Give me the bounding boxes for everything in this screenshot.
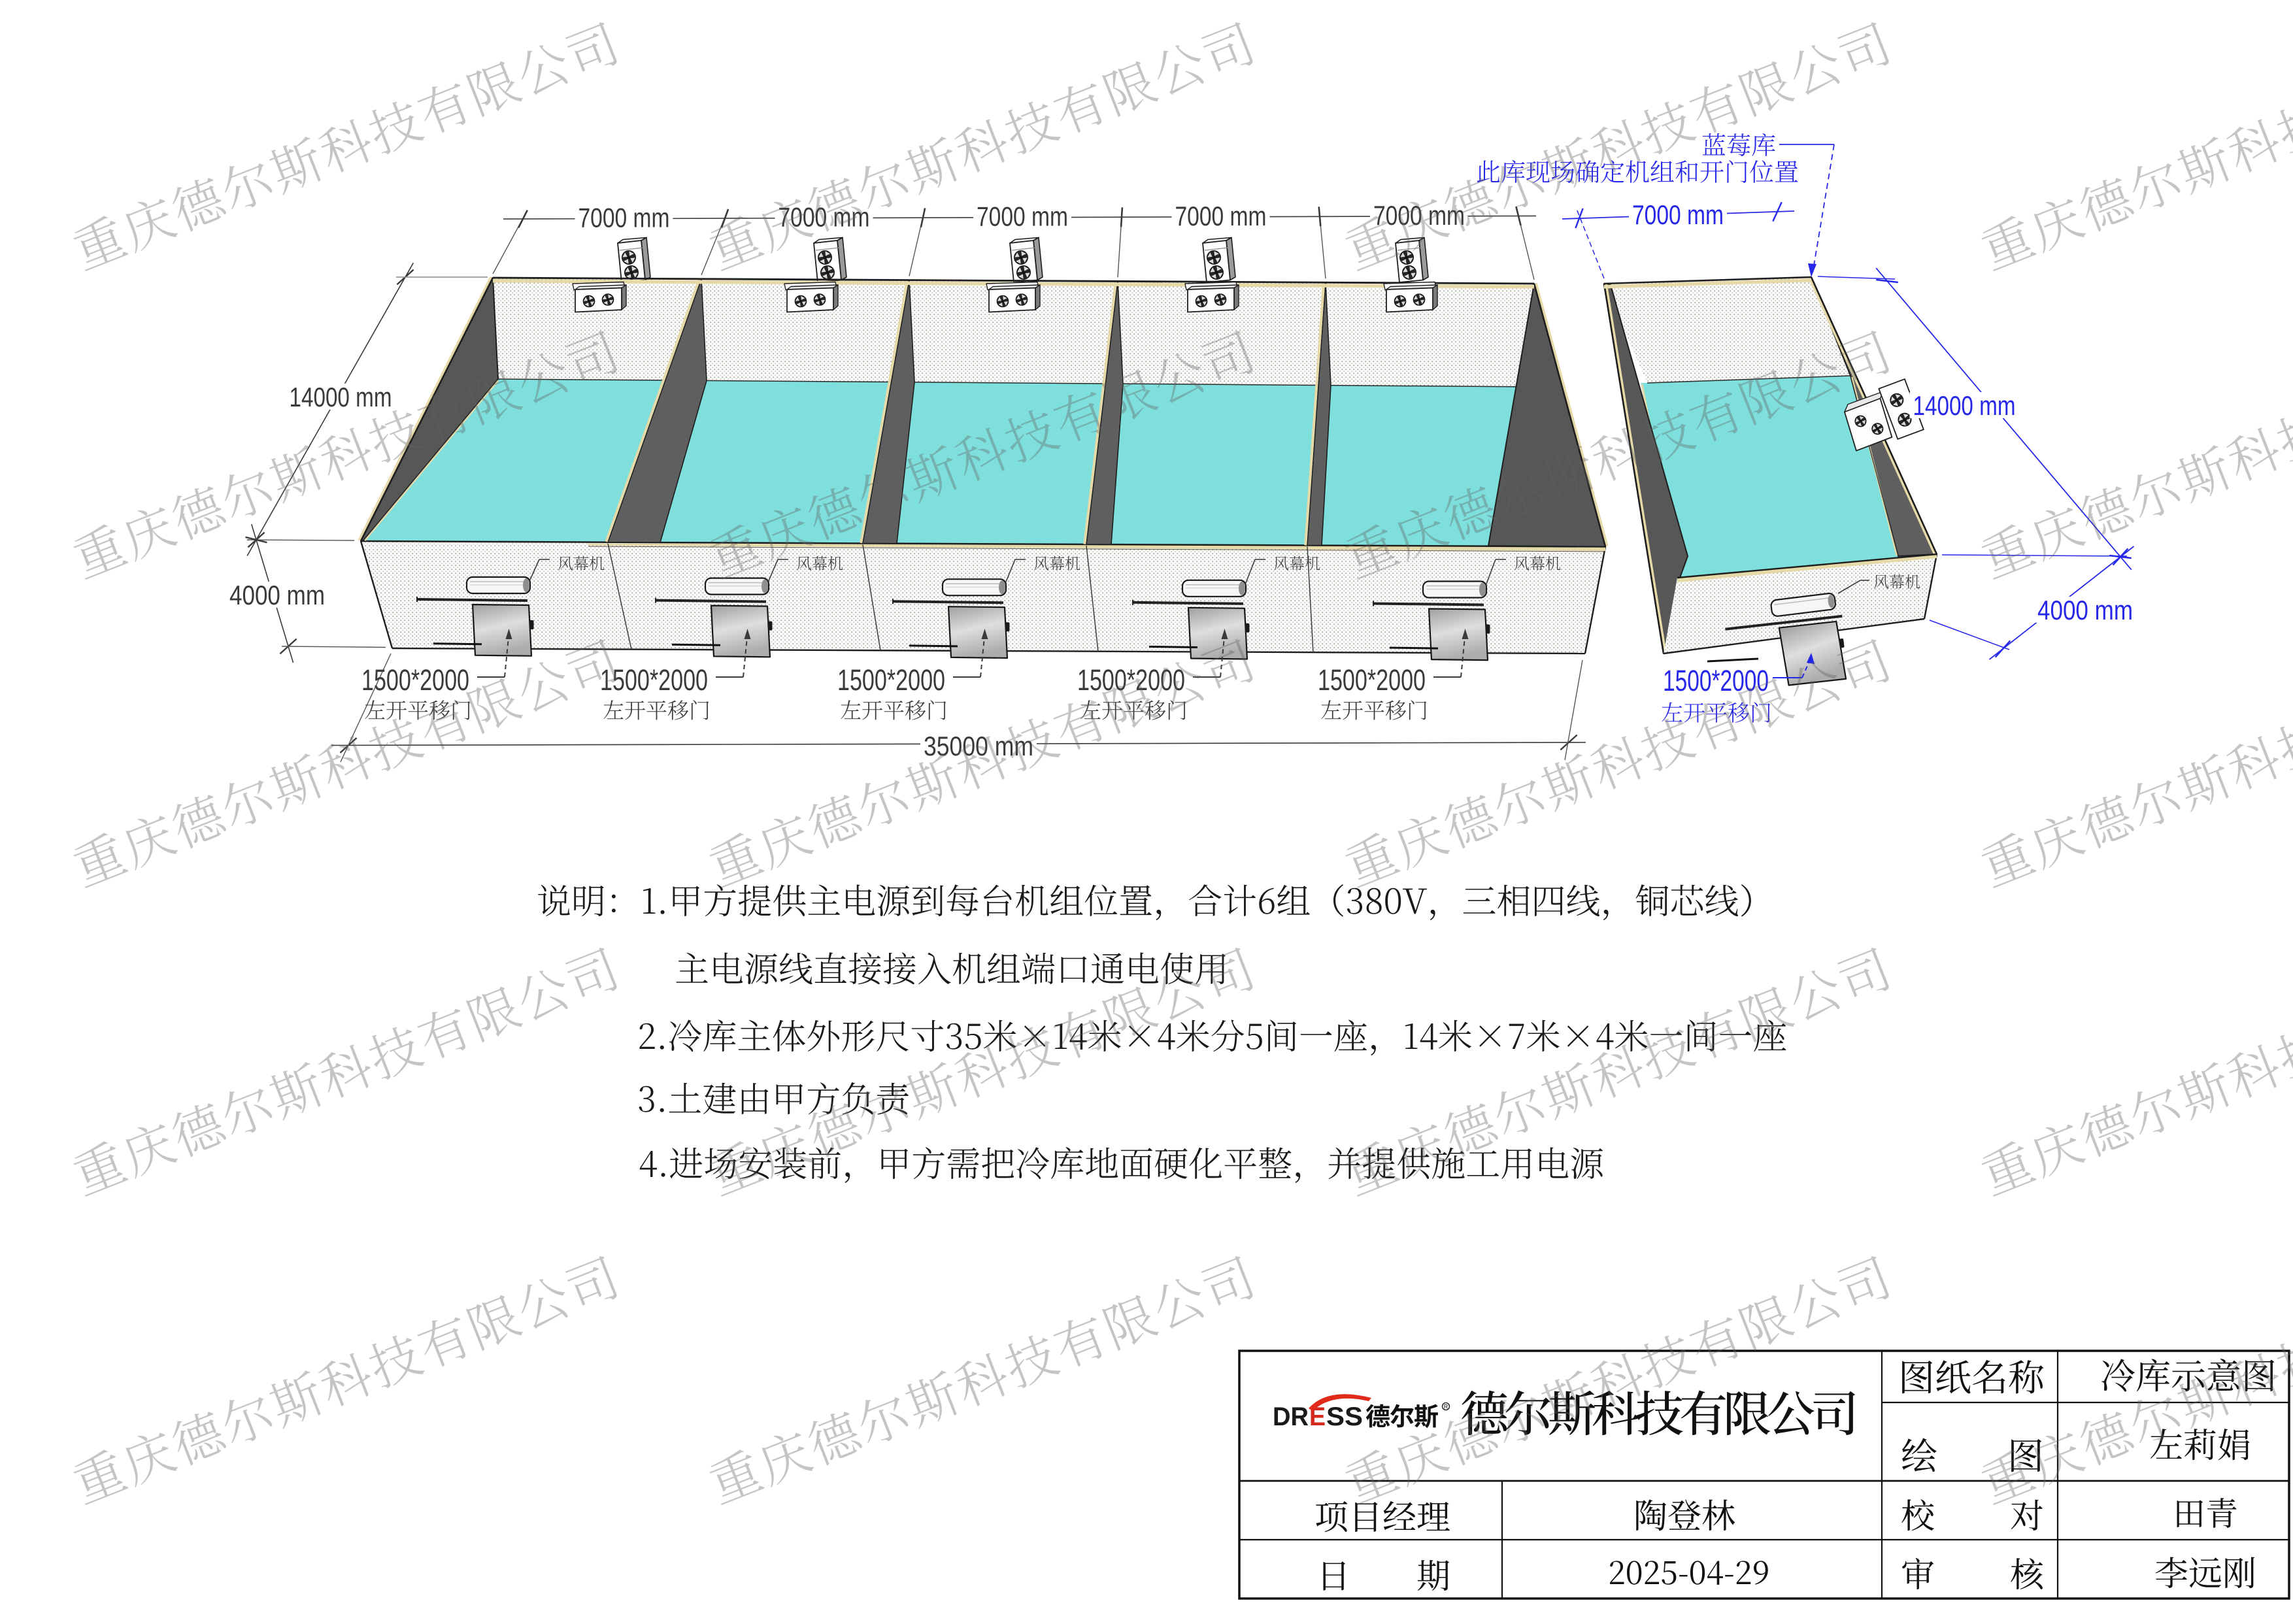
svg-text:14000 mm: 14000 mm [1913,390,2016,421]
svg-text:7000 mm: 7000 mm [578,203,670,233]
svg-text:1500*2000: 1500*2000 [1663,664,1769,697]
svg-text:7000 mm: 7000 mm [1632,199,1724,230]
svg-text:R: R [1444,1404,1448,1410]
svg-text:1500*2000: 1500*2000 [1077,663,1185,697]
svg-text:7000 mm: 7000 mm [977,201,1068,232]
svg-text:1500*2000: 1500*2000 [837,663,945,697]
svg-text:1500*2000: 1500*2000 [361,663,469,697]
svg-text:DR: DR [1273,1402,1309,1431]
svg-text:1500*2000: 1500*2000 [1318,663,1426,697]
svg-text:4000 mm: 4000 mm [229,580,325,610]
svg-text:14000 mm: 14000 mm [290,382,392,412]
svg-text:SS: SS [1326,1402,1363,1431]
svg-text:4000 mm: 4000 mm [2037,595,2133,625]
svg-text:7000 mm: 7000 mm [1175,201,1267,231]
